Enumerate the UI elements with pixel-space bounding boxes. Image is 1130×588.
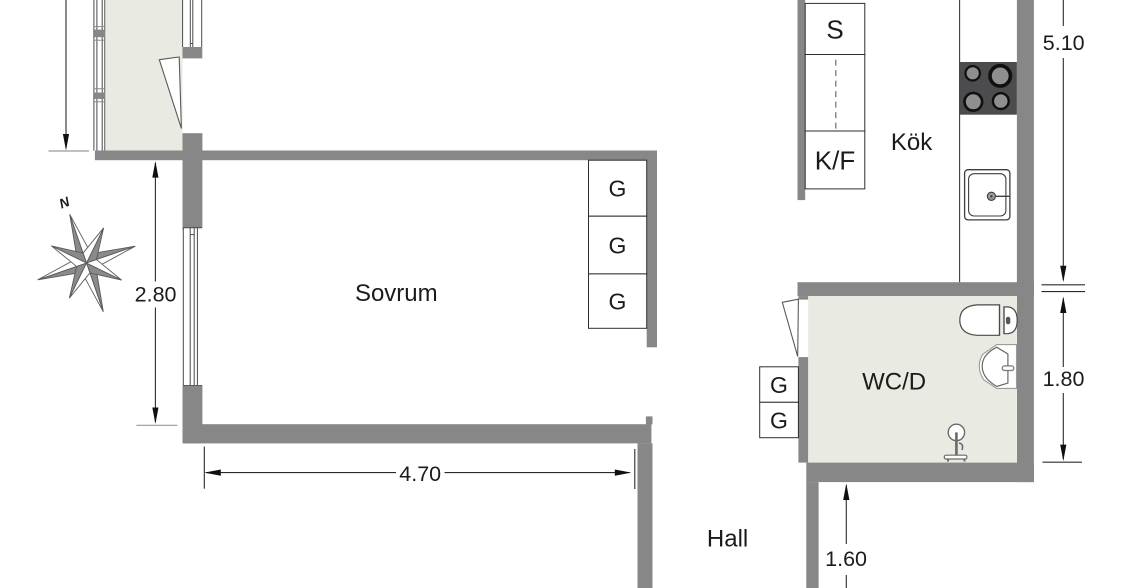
svg-text:Hall: Hall xyxy=(707,525,748,552)
svg-text:G: G xyxy=(609,288,627,314)
svg-text:4.70: 4.70 xyxy=(399,462,441,486)
svg-text:Kök: Kök xyxy=(891,129,933,156)
svg-text:Sovrum: Sovrum xyxy=(355,280,438,307)
svg-text:K/F: K/F xyxy=(815,145,855,175)
svg-text:1.80: 1.80 xyxy=(1043,367,1085,391)
svg-text:G: G xyxy=(609,176,627,202)
svg-text:WC/D: WC/D xyxy=(862,368,926,395)
svg-text:G: G xyxy=(770,407,788,433)
svg-text:5.10: 5.10 xyxy=(1043,31,1085,55)
svg-text:2.80: 2.80 xyxy=(135,282,177,306)
svg-text:1.60: 1.60 xyxy=(825,547,867,571)
svg-text:G: G xyxy=(770,372,788,398)
svg-text:G: G xyxy=(609,232,627,258)
svg-text:S: S xyxy=(826,14,843,44)
